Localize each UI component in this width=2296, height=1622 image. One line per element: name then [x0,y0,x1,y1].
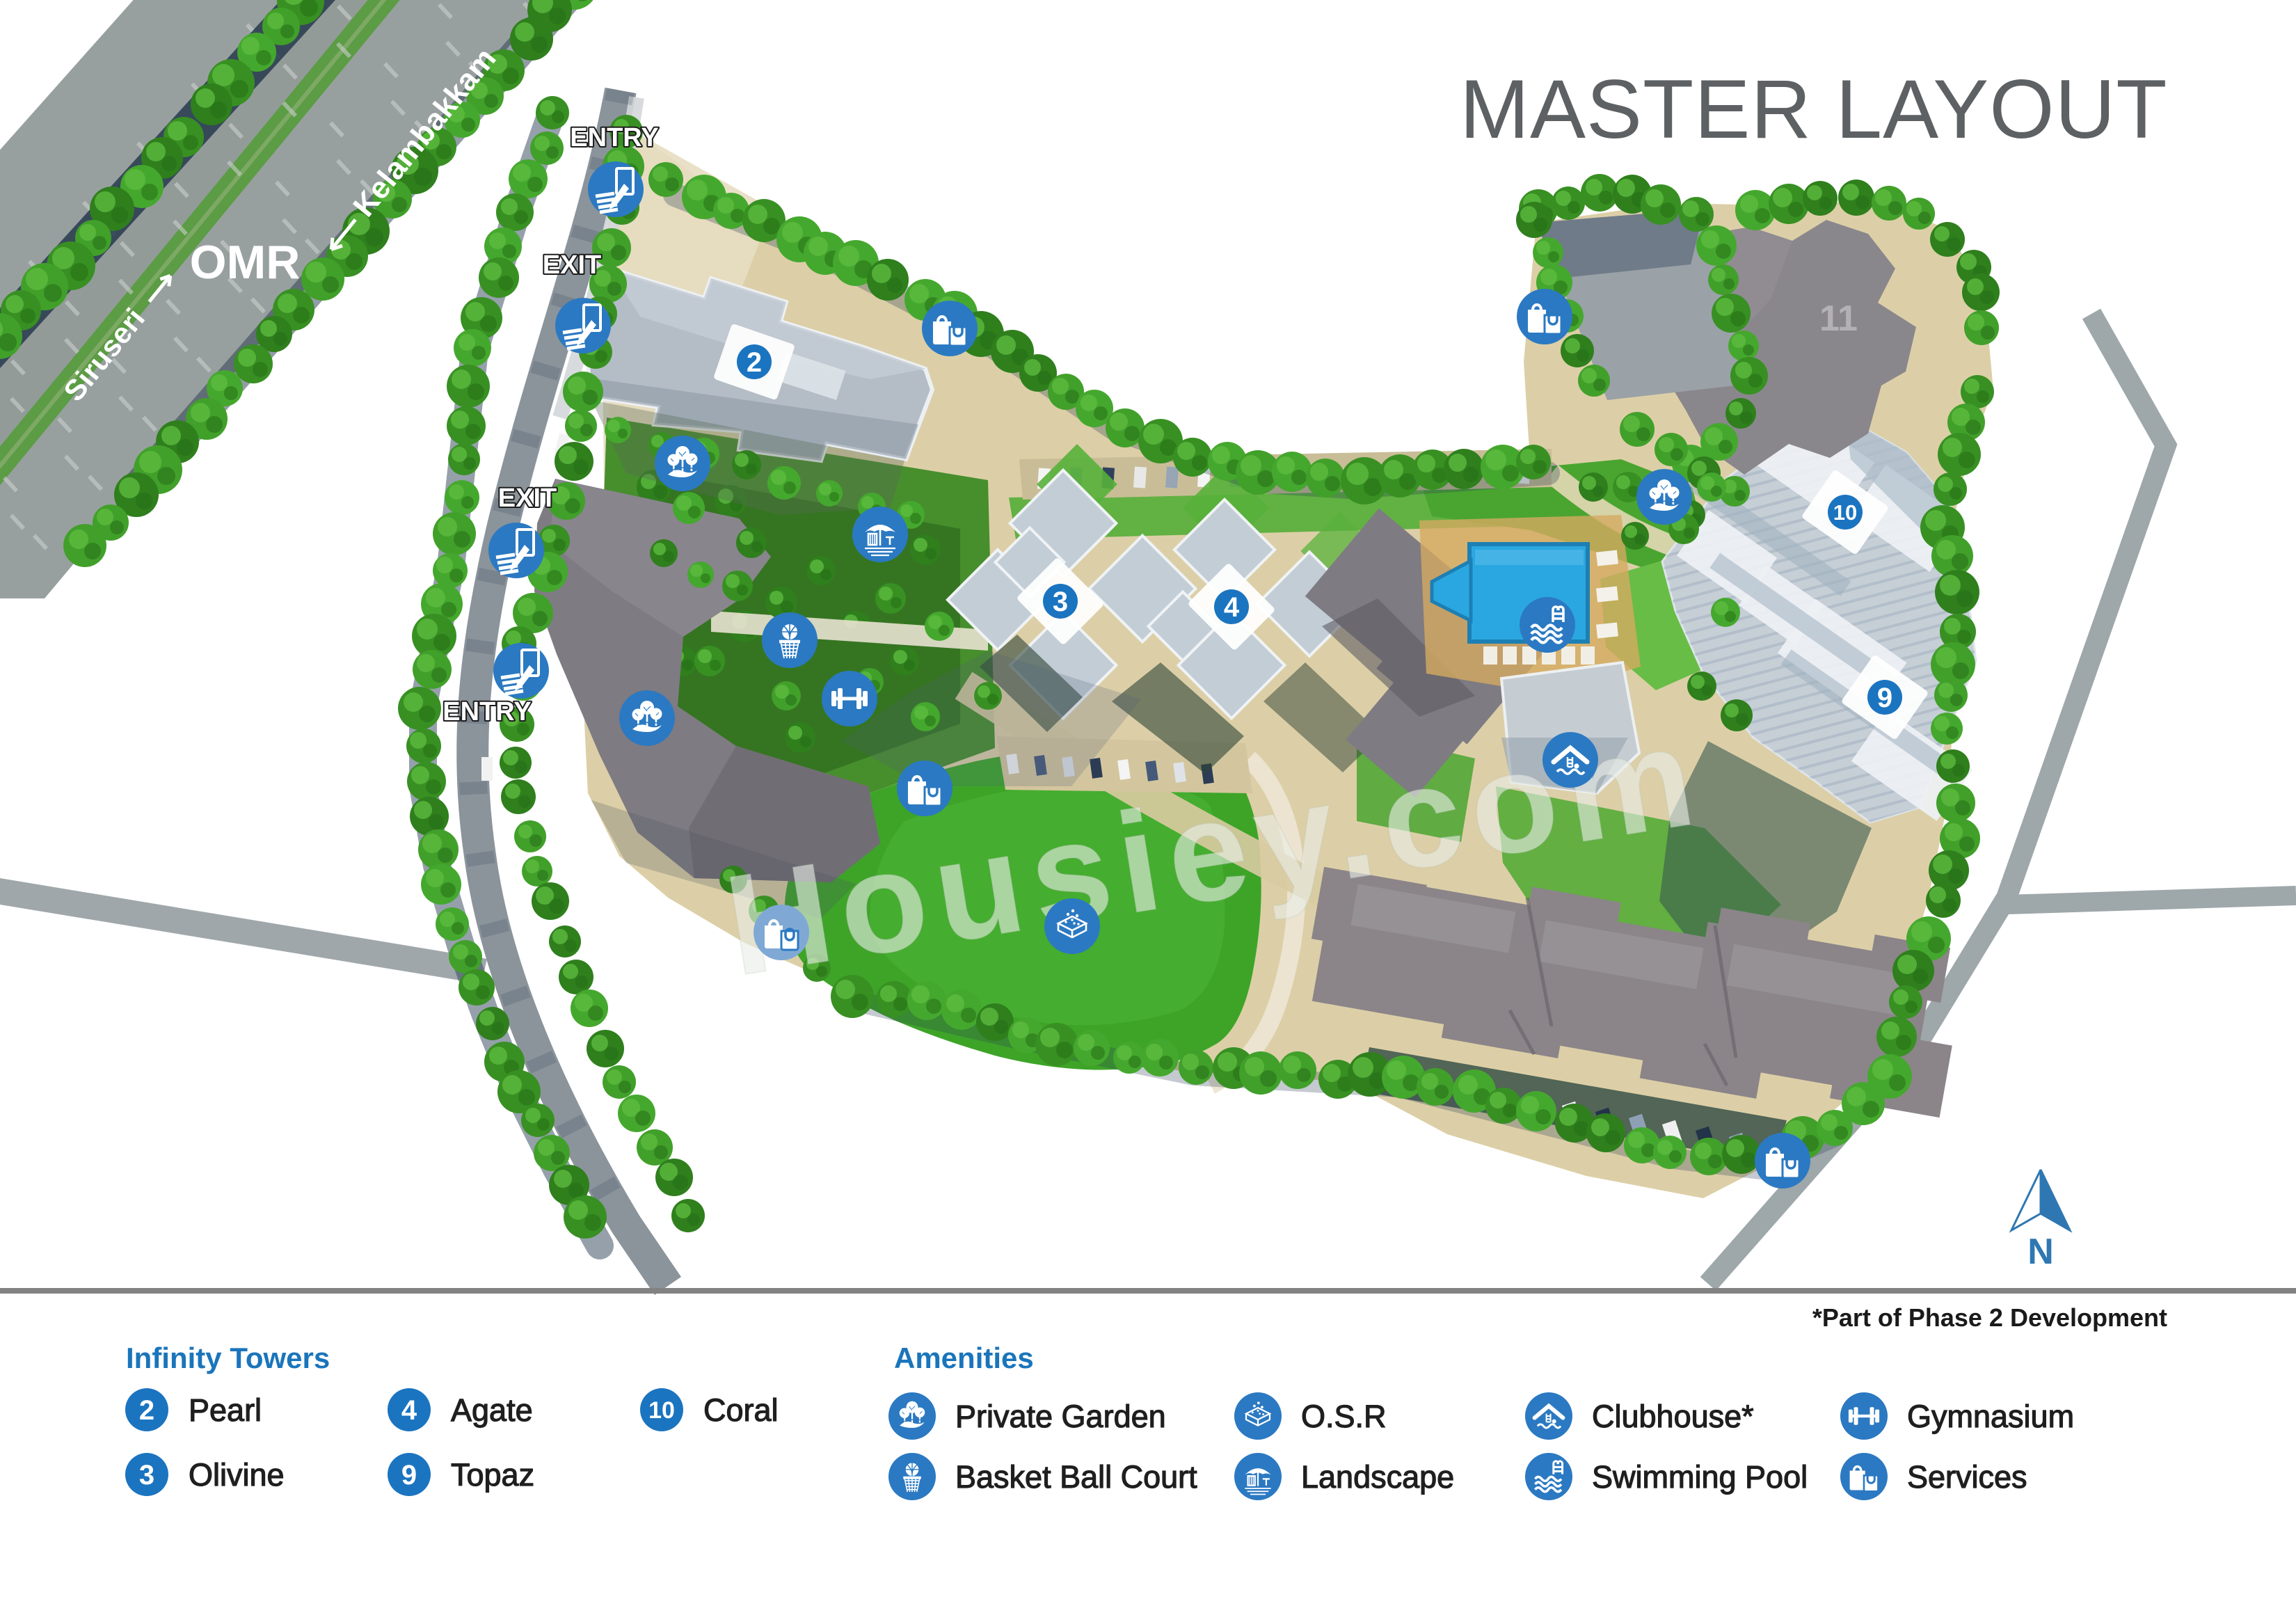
svg-text:Coral: Coral [703,1392,779,1428]
svg-text:3: 3 [139,1460,154,1490]
svg-text:EXIT: EXIT [543,251,601,280]
svg-text:EXIT: EXIT [498,484,557,513]
svg-text:2: 2 [139,1395,154,1426]
svg-text:Amenities: Amenities [894,1342,1034,1374]
svg-text:3: 3 [1053,587,1068,617]
svg-text:Gymnasium: Gymnasium [1907,1399,2074,1434]
svg-text:Services: Services [1907,1459,2027,1495]
svg-text:ENTRY: ENTRY [443,697,531,726]
svg-text:Private Garden: Private Garden [955,1399,1166,1434]
svg-text:Agate: Agate [451,1392,533,1428]
svg-text:4: 4 [1224,592,1240,623]
svg-text:O.S.R: O.S.R [1301,1399,1387,1434]
svg-text:Basket Ball Court: Basket Ball Court [955,1459,1197,1495]
svg-text:9: 9 [401,1460,417,1490]
svg-text:Landscape: Landscape [1301,1459,1454,1495]
svg-text:ENTRY: ENTRY [570,123,658,152]
svg-text:Swimming Pool: Swimming Pool [1592,1459,1808,1495]
svg-text:9: 9 [1877,683,1892,713]
svg-text:Olivine: Olivine [189,1457,285,1493]
svg-text:*Part of Phase 2 Development: *Part of Phase 2 Development [1812,1303,2167,1332]
svg-text:Infinity Towers: Infinity Towers [126,1342,330,1374]
svg-text:MASTER LAYOUT: MASTER LAYOUT [1460,63,2168,156]
svg-text:4: 4 [401,1395,417,1426]
svg-text:Clubhouse*: Clubhouse* [1592,1399,1754,1434]
svg-text:OMR: OMR [190,236,301,289]
svg-text:Topaz: Topaz [451,1457,534,1493]
svg-text:N: N [2027,1232,2054,1272]
svg-text:2: 2 [747,347,762,378]
svg-text:10: 10 [648,1397,675,1424]
svg-text:Pearl: Pearl [189,1392,262,1428]
svg-text:10: 10 [1833,500,1857,525]
svg-text:11: 11 [1819,299,1858,339]
